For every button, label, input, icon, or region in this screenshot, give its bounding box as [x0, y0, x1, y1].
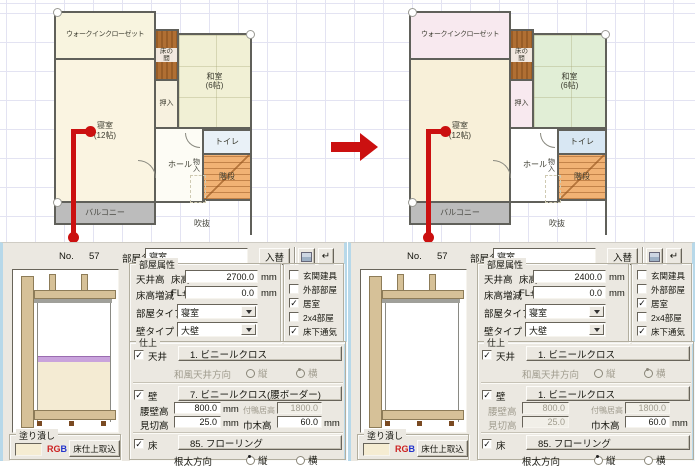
ceiling-height-input[interactable]: 2700.0	[185, 270, 258, 283]
entrance-fitting-checkbox[interactable]	[289, 270, 299, 280]
underfloor-vent-checkbox[interactable]: ✓	[289, 326, 299, 336]
image-icon	[301, 252, 312, 262]
rgb-button[interactable]: RGB	[47, 444, 67, 454]
mm-unit: mm	[223, 418, 239, 429]
kamoi-height-label: 付鴨居高	[243, 405, 275, 416]
preview-wall-line	[110, 303, 111, 422]
mm-unit: mm	[223, 404, 239, 415]
trim-height-label: 見切高	[140, 418, 169, 432]
grid-marker-icon	[601, 30, 610, 39]
preview-wainscot	[38, 362, 110, 410]
joist-vertical-radio[interactable]: 縦	[594, 453, 616, 467]
trim-height-input[interactable]: 25.0	[174, 416, 221, 428]
attr-group-title: 部屋属性	[136, 258, 178, 271]
room-stairs[interactable]: 階段	[557, 153, 607, 201]
floor-finish-button[interactable]: 85. フローリング	[526, 435, 690, 450]
leader-dot	[85, 126, 96, 137]
finish-group: 仕上 ✓ 天井 1. ビニールクロス 和風天井方向 縦 横 ✓ 壁 7. ビニー…	[129, 341, 346, 460]
checkbox-label: 床下通気	[651, 326, 685, 338]
chevron-down-icon[interactable]	[241, 324, 256, 335]
ceiling-checkbox[interactable]: ✓	[482, 350, 492, 360]
room-label: 寝室	[97, 121, 113, 130]
joist-vertical-radio[interactable]: 縦	[246, 453, 268, 467]
wainscot-height-label: 腰壁高	[140, 404, 169, 418]
mm-unit: mm	[261, 272, 277, 283]
room-walkin-closet[interactable]: ウォークインクローゼット	[54, 11, 156, 60]
checkbox-label: 居室	[303, 298, 320, 310]
return-icon: ↵	[322, 251, 330, 262]
joist-dir-label: 根太方向	[522, 454, 560, 468]
baseboard-height-label: 巾木高	[591, 418, 620, 432]
wafu-horizontal-radio[interactable]: 横	[644, 366, 666, 380]
wall-finish-button[interactable]: 7. ビニールクロス(腰ボーダー)	[178, 386, 342, 401]
floor-finish-import-button[interactable]: 床仕上取込	[417, 440, 468, 457]
room-label: ウォークインクローゼット	[421, 31, 499, 39]
wall-type-dropdown[interactable]: 大壁	[525, 322, 606, 337]
room-size-label: (6帖)	[206, 81, 224, 90]
chevron-down-icon[interactable]	[589, 306, 604, 317]
joist-horizontal-radio[interactable]: 横	[296, 453, 318, 467]
leader-line-before	[71, 129, 76, 239]
wall-segment	[250, 151, 252, 235]
ceiling-height-label: 天井高	[484, 272, 513, 286]
void-label: 吹抜	[549, 218, 565, 229]
wafu-ceiling-dir-label: 和風天井方向	[174, 367, 231, 381]
mm-unit: mm	[609, 288, 625, 299]
checkbox-label: 居室	[651, 298, 668, 310]
preview-post	[369, 276, 382, 428]
wall-section-preview	[360, 269, 467, 433]
fill-group: 塗り潰し RGB 床仕上取込	[9, 434, 121, 460]
entrance-fitting-checkbox[interactable]	[637, 270, 647, 280]
checkbox-label: 玄関建具	[651, 270, 685, 282]
room-attributes-group: 部屋属性 天井高 床高+ 2400.0 mm 床高増減 FL± 0.0 mm 部…	[477, 263, 629, 343]
ceiling-label: 天井	[496, 349, 515, 363]
room-type-dropdown[interactable]: 寝室	[177, 304, 258, 319]
floor-adjust-label: 床高増減	[136, 288, 174, 302]
floor-checkbox[interactable]: ✓	[482, 439, 492, 449]
room-label: 床の間	[511, 48, 532, 63]
ceiling-label: 天井	[148, 349, 167, 363]
checkbox-label: 外部部屋	[651, 284, 685, 296]
room-label: ホール	[168, 160, 192, 169]
grid-marker-icon	[408, 8, 417, 17]
room-label: バルコニー	[85, 208, 125, 217]
room-size-label: (6帖)	[561, 81, 579, 90]
room-stairs[interactable]: 階段	[202, 153, 252, 201]
room-type-dropdown[interactable]: 寝室	[525, 304, 606, 319]
wall-checkbox[interactable]: ✓	[134, 390, 144, 400]
room-bedroom[interactable]: 寝室 (12帖)	[409, 58, 511, 203]
external-room-checkbox[interactable]	[637, 284, 647, 294]
room-label: 和室	[562, 72, 578, 81]
wainscot-height-label: 腰壁高	[488, 404, 517, 418]
preview-beam	[34, 290, 116, 299]
return-icon: ↵	[670, 251, 678, 262]
room-oshiire[interactable]: 押入	[509, 79, 534, 129]
room-label: 押入	[160, 100, 174, 108]
room-label: トイレ	[215, 137, 239, 146]
ceiling-finish-button[interactable]: 1. ビニールクロス	[526, 346, 690, 361]
baseboard-height-input[interactable]: 60.0	[625, 416, 670, 428]
wall-finish-button[interactable]: 1. ビニールクロス	[526, 386, 690, 401]
grid-marker-icon	[53, 198, 62, 207]
trim-height-input: 25.0	[522, 416, 569, 428]
divider	[481, 432, 691, 434]
before-after-arrow-icon	[331, 133, 379, 161]
floor-adjust-label: 床高増減	[484, 288, 522, 302]
wainscot-height-input: 800.0	[522, 402, 569, 414]
fill-color-swatch[interactable]	[15, 443, 42, 456]
floor-plan-before: ウォークインクローゼット 寝室 (12帖) バルコニー 床の間 和室 (6帖) …	[52, 5, 264, 233]
finish-group-title: 仕上	[136, 336, 160, 349]
baseboard-height-input[interactable]: 60.0	[277, 416, 322, 428]
attr-group-title: 部屋属性	[484, 258, 526, 271]
grid-marker-icon	[53, 8, 62, 17]
stair-dashed-area	[545, 175, 561, 203]
checkbox-label: 2x4部屋	[651, 312, 682, 324]
preview-joist	[385, 421, 390, 426]
room-properties-panel-before: No. 57 部屋名 寝室 入替 ↵ 塗り潰し RGB 床仕上取込 部屋属性 天…	[0, 242, 347, 461]
floor-plan-canvas: ウォークインクローゼット 寝室 (12帖) バルコニー 床の間 和室 (6帖) …	[0, 0, 695, 242]
preview-ceiling-line	[382, 299, 460, 303]
room-label: ウォークインクローゼット	[66, 31, 144, 39]
ceiling-checkbox[interactable]: ✓	[134, 350, 144, 360]
room-bedroom[interactable]: 寝室 (12帖)	[54, 58, 156, 203]
room-flags-group: 玄関建具 外部部屋 ✓居室 2x4部屋 ✓床下通気	[283, 263, 344, 343]
floor-label: 床	[496, 438, 506, 452]
trim-height-label: 見切高	[488, 418, 517, 432]
checkbox-label: 外部部屋	[303, 284, 337, 296]
no-value: 57	[437, 251, 448, 262]
room-tokonoma[interactable]: 床の間	[154, 29, 179, 81]
preview-floor-beam	[34, 410, 116, 420]
chevron-down-icon[interactable]	[241, 306, 256, 317]
underfloor-vent-checkbox[interactable]: ✓	[637, 326, 647, 336]
kamoi-height-input: 1800.0	[277, 402, 322, 414]
mm-unit: mm	[672, 418, 688, 429]
void-label: 吹抜	[194, 218, 210, 229]
checkbox-label: 玄関建具	[303, 270, 337, 282]
wafu-vertical-radio[interactable]: 縦	[594, 366, 616, 380]
floor-checkbox[interactable]: ✓	[134, 439, 144, 449]
joist-horizontal-radio[interactable]: 横	[644, 453, 666, 467]
divider	[133, 432, 343, 434]
room-flags-group: 玄関建具 外部部屋 ✓居室 2x4部屋 ✓床下通気	[631, 263, 692, 343]
floor-finish-button[interactable]: 85. フローリング	[178, 435, 342, 450]
ceiling-height-input[interactable]: 2400.0	[533, 270, 606, 283]
wall-type-dropdown[interactable]: 大壁	[177, 322, 258, 337]
wafu-ceiling-dir-label: 和風天井方向	[522, 367, 579, 381]
image-icon	[649, 252, 660, 262]
room-size-label: (12帖)	[449, 131, 471, 140]
wafu-vertical-radio[interactable]: 縦	[246, 366, 268, 380]
2x4-room-checkbox[interactable]	[289, 312, 299, 322]
kamoi-height-label: 付鴨居高	[591, 405, 623, 416]
room-washitsu[interactable]: 和室 (6帖)	[177, 33, 252, 129]
leader-line-after	[426, 129, 431, 239]
divider	[481, 382, 691, 384]
room-label: 和室	[207, 72, 223, 81]
room-storage-label: 物入	[193, 159, 202, 174]
no-label: No.	[59, 251, 74, 262]
wainscot-height-input[interactable]: 800.0	[174, 402, 221, 414]
baseboard-height-label: 巾木高	[243, 418, 272, 432]
living-room-checkbox[interactable]: ✓	[289, 298, 299, 308]
room-label: 階段	[574, 172, 590, 181]
room-label: 寝室	[452, 121, 468, 130]
fl-adjust-input[interactable]: 0.0	[533, 286, 606, 299]
wall-label: 壁	[148, 389, 158, 403]
wall-label: 壁	[496, 389, 506, 403]
wall-segment	[605, 151, 607, 235]
room-properties-panel-after: No. 57 部屋名 寝室 入替 ↵ 塗り潰し RGB 床仕上取込 部屋属性 天…	[348, 242, 695, 461]
room-label: トイレ	[570, 137, 594, 146]
room-storage-label: 物入	[548, 159, 557, 174]
checkbox-label: 2x4部屋	[303, 312, 334, 324]
room-oshiire[interactable]: 押入	[154, 79, 179, 129]
fill-color-swatch[interactable]	[363, 443, 390, 456]
room-attributes-group: 部屋属性 天井高 床高+ 2700.0 mm 床高増減 FL± 0.0 mm 部…	[129, 263, 281, 343]
no-value: 57	[89, 251, 100, 262]
preview-joist	[101, 421, 106, 426]
room-label: 押入	[515, 100, 529, 108]
wall-section-preview	[12, 269, 119, 433]
ceiling-finish-button[interactable]: 1. ビニールクロス	[178, 346, 342, 361]
preview-post	[21, 276, 34, 428]
floor-label: 床	[148, 438, 158, 452]
fill-group-title: 塗り潰し	[16, 429, 58, 442]
finish-group-title: 仕上	[484, 336, 508, 349]
divider	[133, 382, 343, 384]
chevron-down-icon[interactable]	[589, 324, 604, 335]
ceiling-height-label: 天井高	[136, 272, 165, 286]
mm-unit: mm	[609, 272, 625, 283]
room-label: バルコニー	[440, 208, 480, 217]
living-room-checkbox[interactable]: ✓	[637, 298, 647, 308]
room-balcony[interactable]: バルコニー	[409, 201, 511, 225]
no-label: No.	[407, 251, 422, 262]
grid-marker-icon	[246, 30, 255, 39]
preview-ceiling-line	[34, 299, 112, 303]
checkbox-label: 床下通気	[303, 326, 337, 338]
room-balcony[interactable]: バルコニー	[54, 201, 156, 225]
wafu-horizontal-radio[interactable]: 横	[296, 366, 318, 380]
room-tokonoma[interactable]: 床の間	[509, 29, 534, 81]
preview-joist	[449, 421, 454, 426]
2x4-room-checkbox[interactable]	[637, 312, 647, 322]
room-label: 階段	[219, 172, 235, 181]
external-room-checkbox[interactable]	[289, 284, 299, 294]
preview-joist	[37, 421, 42, 426]
room-size-label: (12帖)	[94, 131, 116, 140]
grid-marker-icon	[408, 198, 417, 207]
room-label: 床の間	[156, 48, 177, 63]
mm-unit: mm	[324, 418, 340, 429]
room-toilet[interactable]: トイレ	[202, 129, 252, 155]
floor-plan-after: ウォークインクローゼット 寝室 (12帖) バルコニー 床の間 和室 (6帖) …	[407, 5, 619, 233]
preview-joist	[417, 421, 422, 426]
fl-adjust-input[interactable]: 0.0	[185, 286, 258, 299]
preview-wall-line	[458, 303, 459, 422]
preview-floor-beam	[382, 410, 464, 420]
preview-wall-line	[385, 303, 386, 422]
room-label: ホール	[523, 160, 547, 169]
stair-dashed-area	[190, 175, 206, 203]
room-washitsu[interactable]: 和室 (6帖)	[532, 33, 607, 129]
finish-group: 仕上 ✓ 天井 1. ビニールクロス 和風天井方向 縦 横 ✓ 壁 1. ビニー…	[477, 341, 694, 460]
room-toilet[interactable]: トイレ	[557, 129, 607, 155]
preview-joist	[69, 421, 74, 426]
fill-group-title: 塗り潰し	[364, 429, 406, 442]
fill-group: 塗り潰し RGB 床仕上取込	[357, 434, 469, 460]
wall-checkbox[interactable]: ✓	[482, 390, 492, 400]
preview-beam	[382, 290, 464, 299]
kamoi-height-input: 1800.0	[625, 402, 670, 414]
room-walkin-closet[interactable]: ウォークインクローゼット	[409, 11, 511, 60]
floor-finish-import-button[interactable]: 床仕上取込	[69, 440, 120, 457]
leader-dot	[440, 126, 451, 137]
mm-unit: mm	[261, 288, 277, 299]
joist-dir-label: 根太方向	[174, 454, 212, 468]
rgb-button[interactable]: RGB	[395, 444, 415, 454]
